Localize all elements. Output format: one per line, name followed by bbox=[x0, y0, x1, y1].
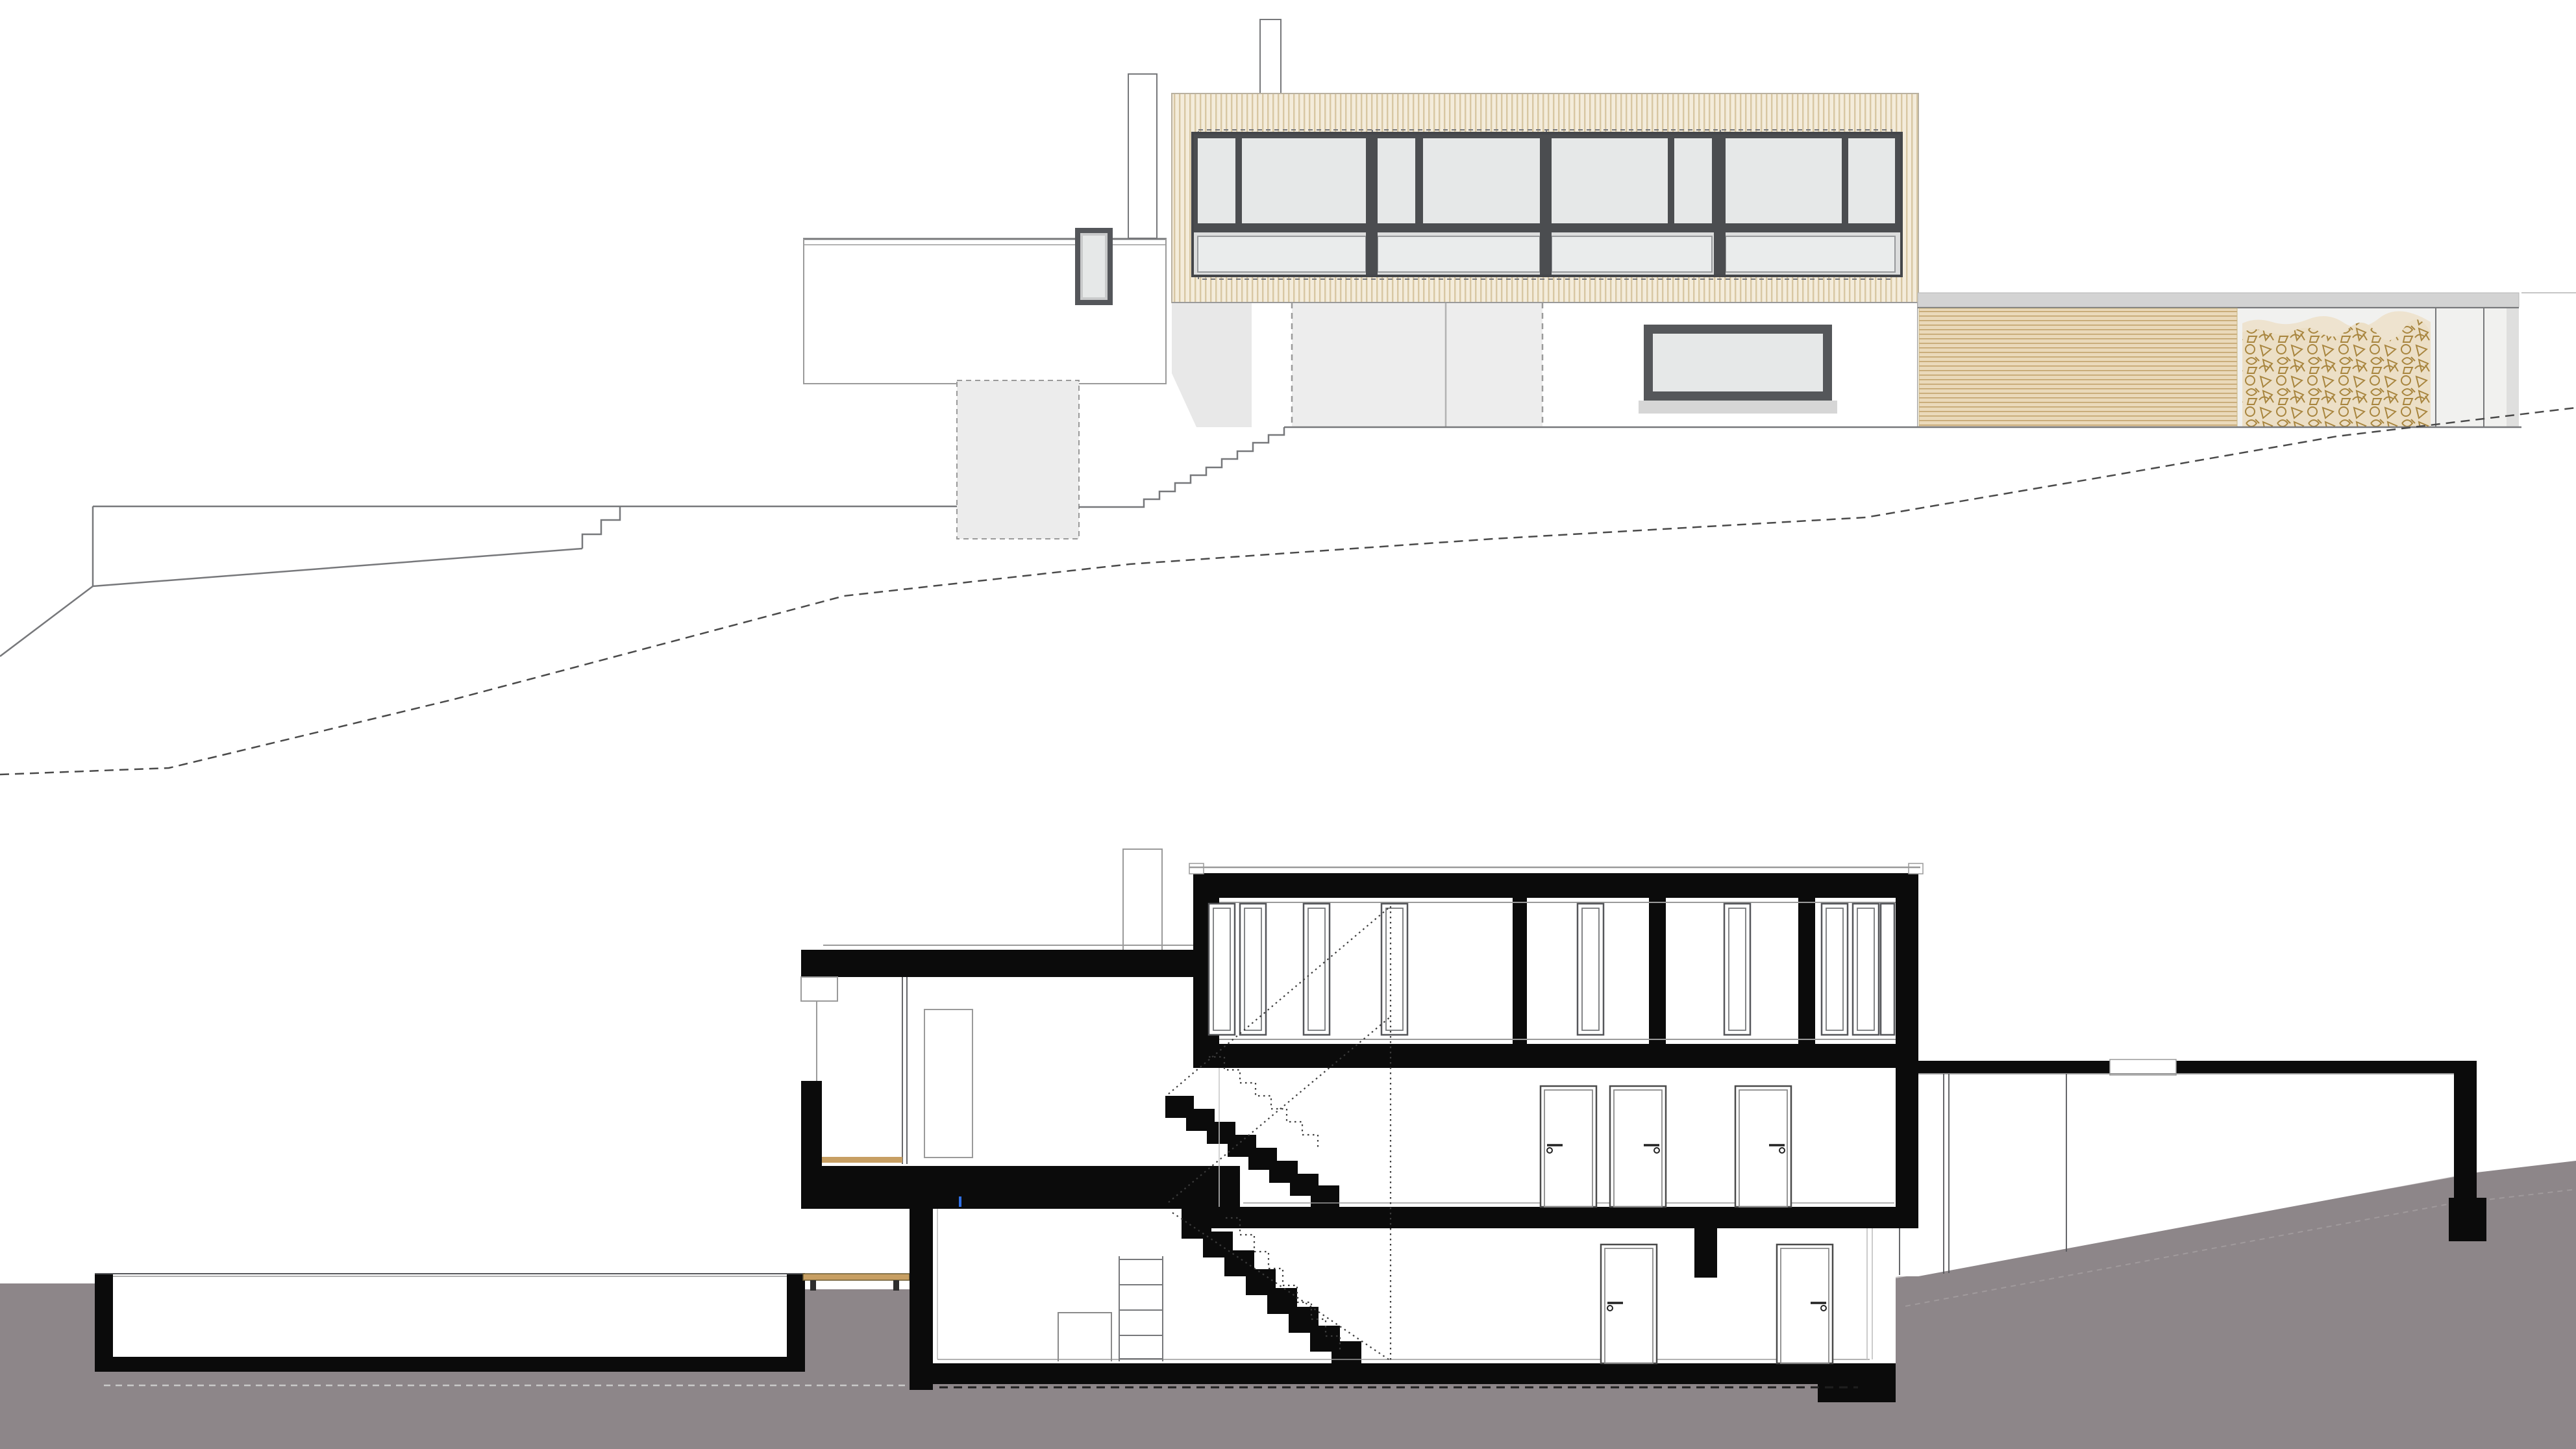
ribbon-window-band bbox=[1193, 133, 1901, 276]
shadow-wedge bbox=[1172, 303, 1196, 427]
upper-floor-interior bbox=[1209, 902, 1896, 1039]
deck-post bbox=[893, 1280, 899, 1291]
ground-floor-window bbox=[1639, 325, 1837, 414]
stair-flight-lower bbox=[1182, 1213, 1361, 1367]
hidden-cellar-volume bbox=[957, 380, 1079, 539]
upper-pier bbox=[1798, 898, 1815, 1044]
annex-roof-opening bbox=[2110, 1059, 2176, 1075]
deck-post bbox=[810, 1280, 816, 1291]
basement-low-opening bbox=[1058, 1313, 1111, 1361]
basement-ladder bbox=[1119, 1256, 1163, 1361]
wing-gutter-notch bbox=[801, 977, 837, 1001]
wing-roof-slab bbox=[801, 950, 1196, 977]
basement-slab bbox=[910, 1363, 1896, 1384]
basement-stub-wall bbox=[1694, 1228, 1717, 1278]
retaining-wall bbox=[2454, 1061, 2477, 1198]
pool-section bbox=[95, 1274, 805, 1372]
timber-clad-upper-box bbox=[1172, 93, 1918, 303]
view-elevation bbox=[0, 19, 2576, 774]
basement-interior bbox=[937, 1209, 1872, 1363]
chimney-main-roof bbox=[1260, 19, 1281, 93]
recessed-ground-floor-pier bbox=[1292, 303, 1542, 428]
terrain-small-steps bbox=[582, 506, 620, 549]
view-section bbox=[0, 849, 2576, 1449]
wing-door-beyond bbox=[924, 1009, 972, 1158]
annex-roof-band bbox=[1918, 293, 2519, 307]
upper-wall-panels bbox=[1209, 904, 1894, 1035]
blue-marker bbox=[959, 1196, 961, 1207]
natural-grade-dashed-line bbox=[0, 408, 2576, 774]
wing-window bbox=[1075, 228, 1113, 305]
garage-slat-door bbox=[1919, 308, 2237, 427]
outdoor-stair bbox=[1130, 427, 1284, 507]
annex-roof-slab bbox=[1918, 1061, 2477, 1074]
parapet-cap-right bbox=[1909, 863, 1923, 874]
upper-floor-slab bbox=[1193, 1044, 1918, 1068]
middle-floor-slab bbox=[1182, 1207, 1896, 1228]
drawing-sheet bbox=[0, 0, 2576, 1449]
timber-deck bbox=[803, 1274, 910, 1291]
wing-timber-floor bbox=[822, 1157, 902, 1163]
chimney-left-wing bbox=[1128, 74, 1157, 238]
parapet-cap-left bbox=[1189, 863, 1204, 874]
terrain-lines bbox=[0, 427, 2521, 656]
roof-slab bbox=[1193, 873, 1918, 898]
retaining-wall-footing bbox=[2449, 1198, 2486, 1241]
upper-pier bbox=[1513, 898, 1527, 1044]
upper-pier bbox=[1649, 898, 1666, 1044]
basement-left-wall bbox=[910, 1209, 933, 1390]
middle-floor-doors bbox=[1541, 1086, 1791, 1207]
drawing-canvas bbox=[0, 0, 2576, 1449]
garage-annex bbox=[1918, 293, 2519, 427]
entry-floor-slab bbox=[801, 1166, 1240, 1209]
section-chimney bbox=[1123, 849, 1162, 952]
